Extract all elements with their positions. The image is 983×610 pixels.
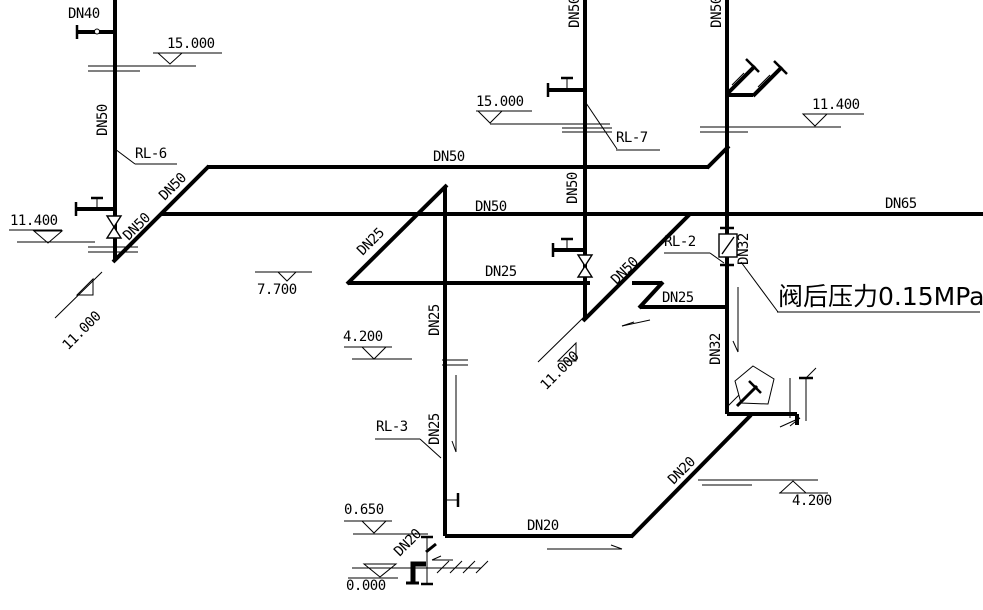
- elevation-label: 0.650: [344, 503, 384, 517]
- pipe-label-dn20-main: DN20: [527, 519, 559, 533]
- pipe-label-dn50-upper: DN50: [433, 150, 465, 164]
- pipe-label-dn50-main: DN50: [475, 200, 507, 214]
- pipe-label-dn25-upper: DN25: [485, 265, 517, 279]
- elevation-label: 7.700: [257, 283, 297, 297]
- pressure-reducing-valve-icon: [719, 234, 737, 257]
- pentagon-marker: [727, 366, 774, 407]
- pipe-label-dn25-riser-upper: DN25: [428, 304, 442, 336]
- elevation-label: 11.400: [10, 214, 58, 228]
- elevation-label: 15.000: [167, 37, 215, 51]
- piping-diagram: DN40 15.000 RL-6 11.400 DN50 15.000 RL-7…: [0, 0, 983, 610]
- elevation-label: 11.400: [812, 98, 860, 112]
- elevation-label: 15.000: [476, 95, 524, 109]
- pipe-label-dn32-upper: DN32: [737, 233, 751, 265]
- pipes-thick: [76, 0, 983, 537]
- pipe-label-dn50-left-riser: DN50: [96, 104, 110, 136]
- riser-label-rl2: RL-2: [664, 235, 696, 249]
- pipe-label-dn32-lower: DN32: [709, 333, 723, 365]
- riser-label-rl7: RL-7: [616, 131, 648, 145]
- riser-label-rl6: RL-6: [135, 147, 167, 161]
- annotation-lines: [9, 53, 980, 584]
- gate-valve-left-icon: [107, 216, 121, 238]
- pipe-label-dn50-center-riser: DN50: [566, 172, 580, 204]
- pipe-label-dn50-right-riser-top: DN50: [710, 0, 724, 28]
- riser-label-rl3: RL-3: [376, 420, 408, 434]
- elevation-label: 4.200: [343, 330, 383, 344]
- pipe-label-dn50-center-riser-top: DN50: [568, 0, 582, 28]
- fitting-stems: [97, 79, 727, 265]
- pipe-label-dn40: DN40: [68, 7, 100, 21]
- valve-pressure-note: 阀后压力0.15MPa: [778, 284, 983, 309]
- pipe-label-dn25-riser-lower: DN25: [428, 413, 442, 445]
- pipe-label-dn65: DN65: [885, 197, 917, 211]
- fitting-circle: [95, 29, 100, 34]
- elevation-label: 4.200: [792, 494, 832, 508]
- gate-valve-center-icon: [578, 255, 592, 277]
- pipe-label-dn25-lower: DN25: [662, 291, 694, 305]
- elevation-label: 0.000: [346, 579, 386, 593]
